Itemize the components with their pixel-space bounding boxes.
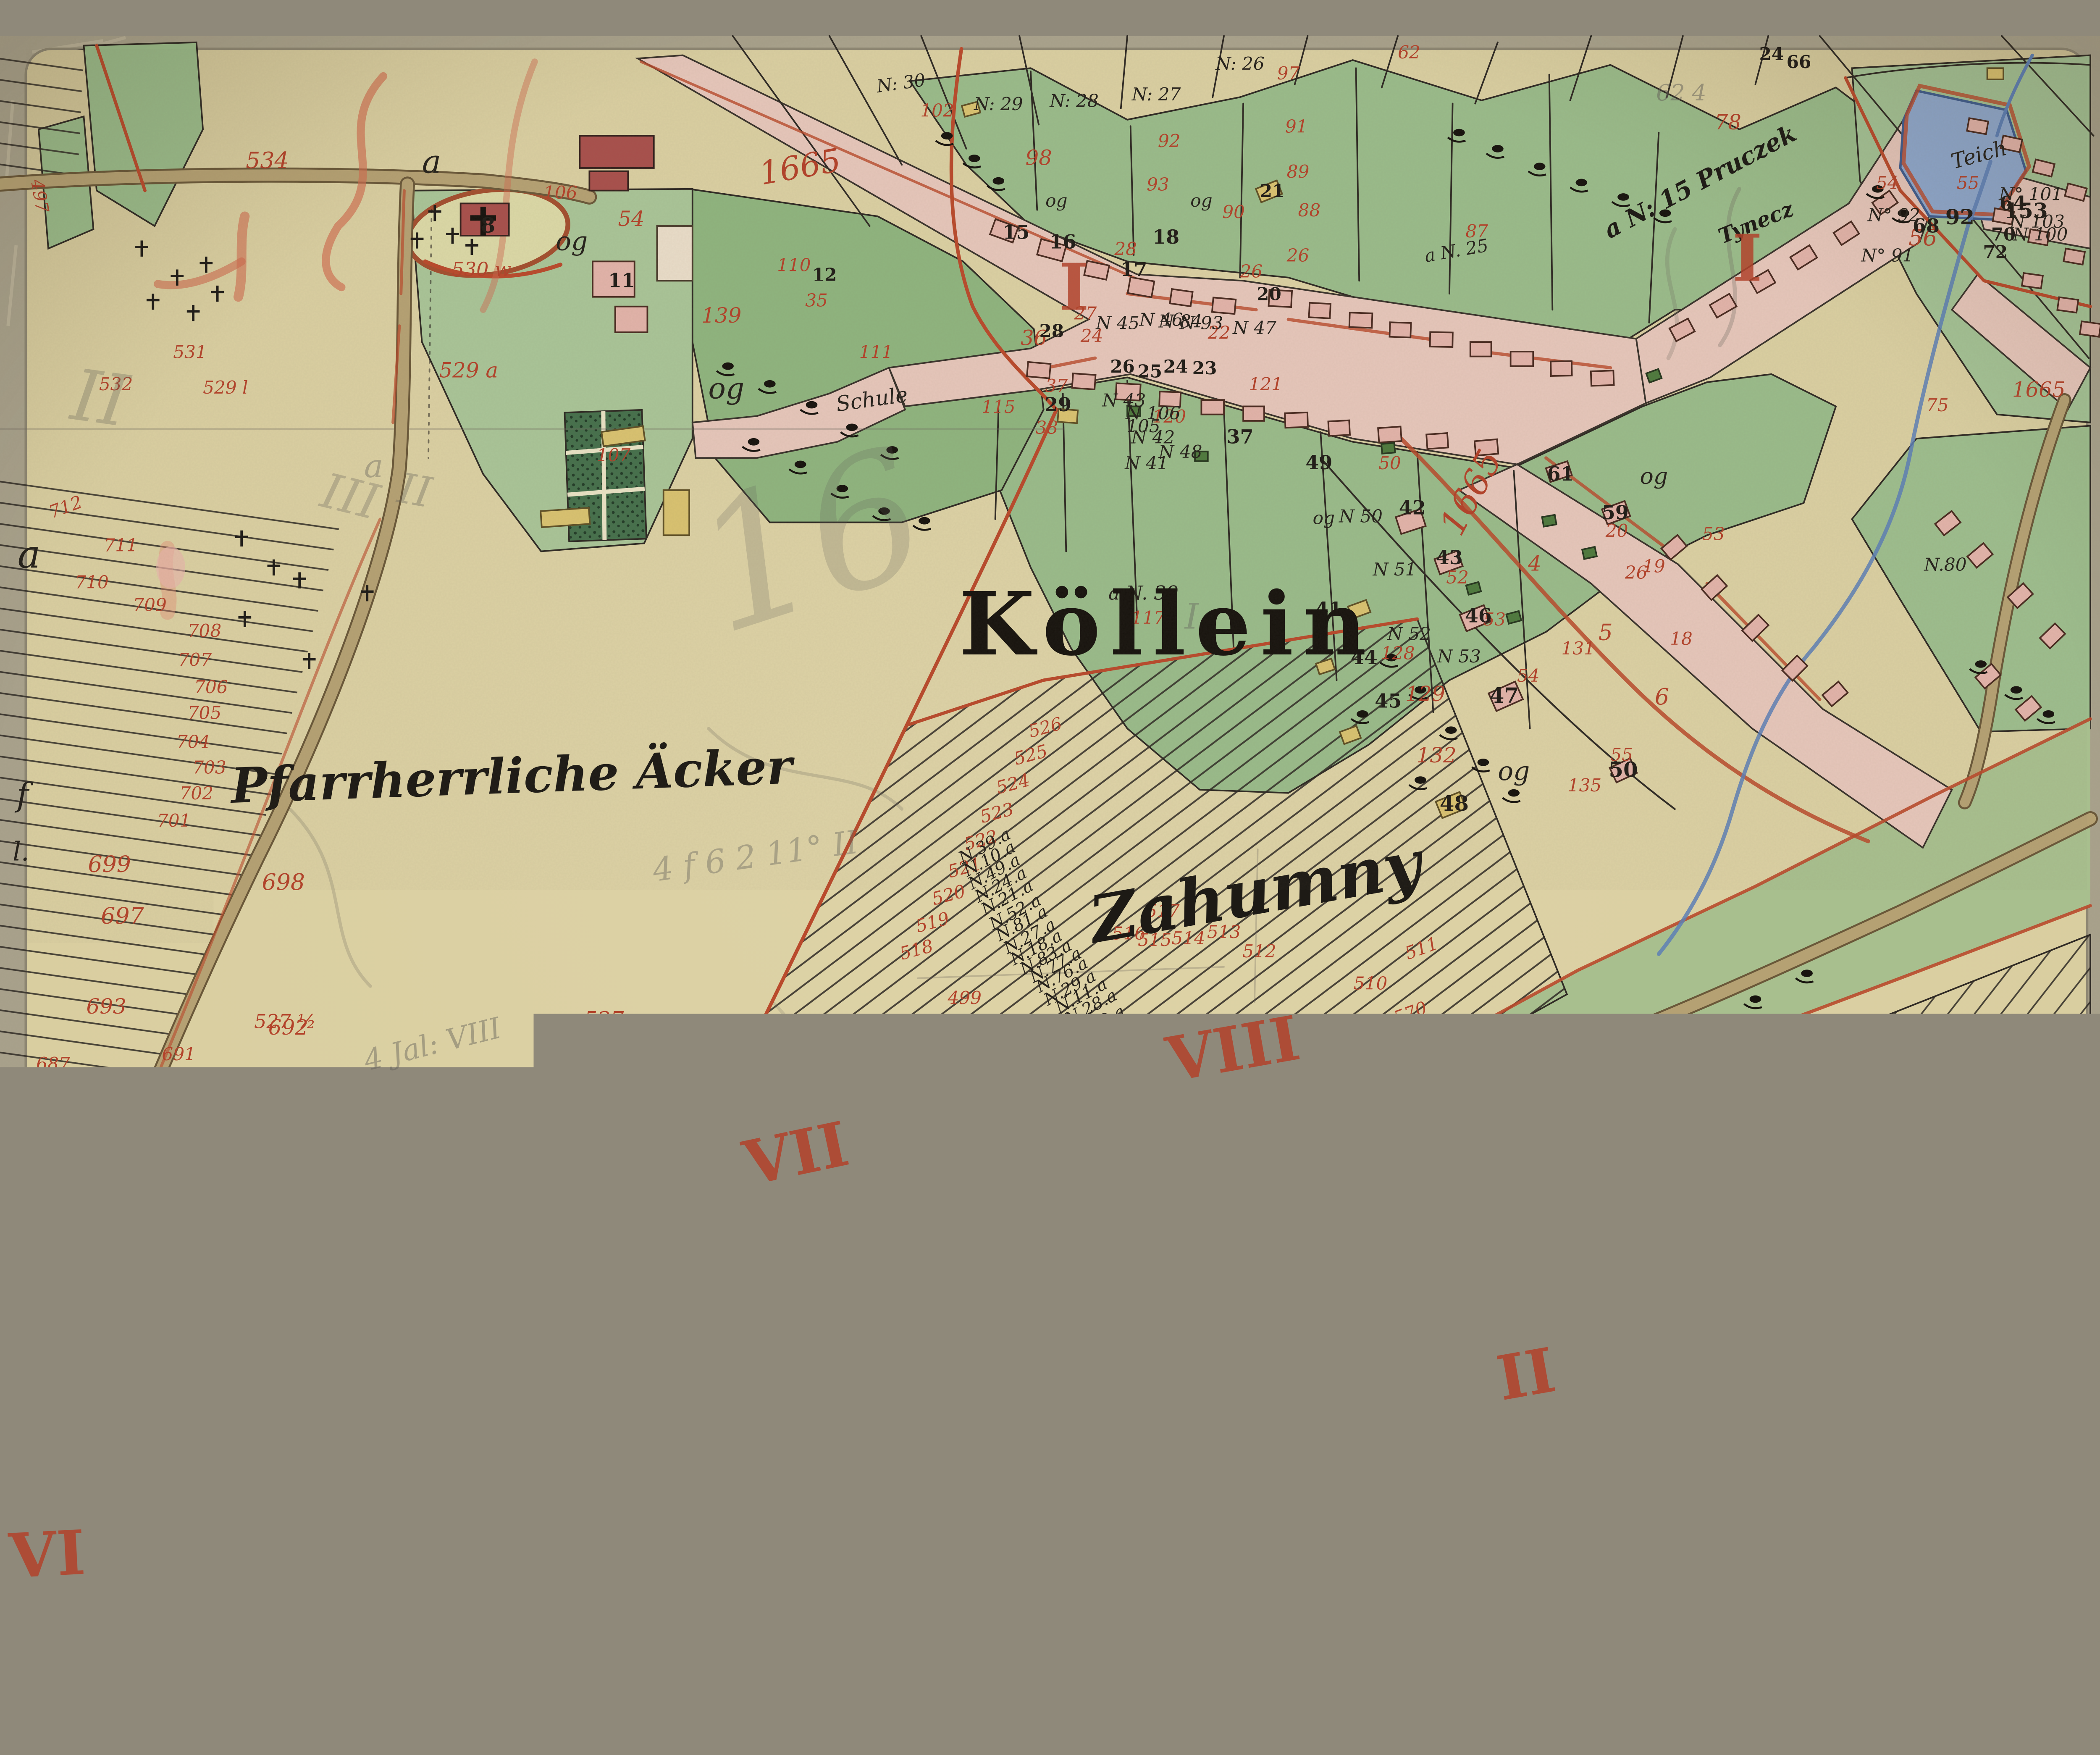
vignette [0, 36, 2100, 1719]
cadastral-map-kollein: 497534531532529 a529 l530 w1061075411111… [0, 0, 2100, 1755]
